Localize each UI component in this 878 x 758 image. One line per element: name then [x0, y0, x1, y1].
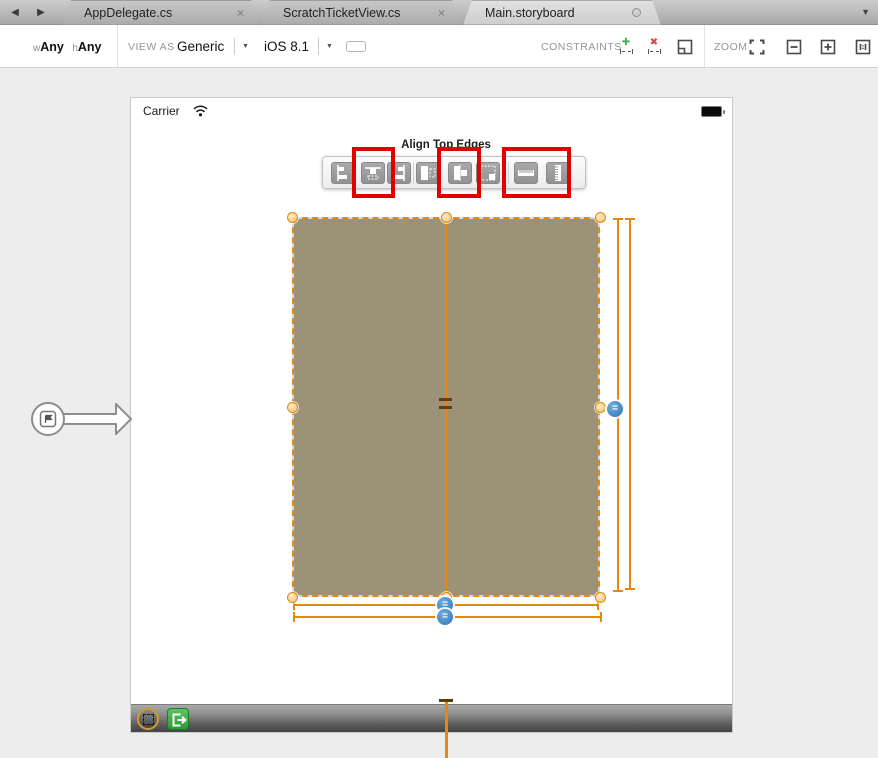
exit-segue-icon[interactable]	[167, 708, 189, 730]
nav-forward-icon[interactable]: ▶	[28, 0, 54, 25]
toolbar-divider	[318, 38, 319, 55]
minus-square-icon	[786, 39, 802, 55]
constraints-label: CONSTRAINTS	[541, 41, 622, 53]
equal-width-badge[interactable]: =	[437, 609, 453, 625]
highlight-box-align-top	[352, 147, 395, 198]
battery-icon	[701, 106, 722, 117]
center-tick	[439, 406, 452, 409]
tab-label: ScratchTicketView.cs	[283, 6, 438, 20]
toolbar-divider	[704, 25, 705, 67]
zoom-fit-button[interactable]	[749, 39, 765, 60]
center-tick	[439, 398, 452, 401]
tab-overflow-menu-icon[interactable]: ▼	[861, 0, 870, 25]
handle-bottom-right[interactable]	[595, 592, 606, 603]
width-class-value: Any	[40, 40, 64, 54]
update-frames-button[interactable]	[677, 39, 693, 60]
handle-top-right[interactable]	[595, 212, 606, 223]
tab-main-storyboard[interactable]: Main.storyboard	[463, 0, 661, 25]
constraint-bracket-icon	[648, 49, 661, 54]
handle-mid-left[interactable]	[287, 402, 298, 413]
close-icon[interactable]: ×	[237, 6, 244, 20]
design-canvas[interactable]: Carrier Align Top Edges	[0, 68, 878, 758]
carrier-label: Carrier	[143, 104, 180, 118]
height-constraint-bar[interactable]	[629, 218, 631, 590]
fullscreen-icon	[749, 39, 765, 55]
height-class-value: Any	[78, 40, 102, 54]
storyboard-designer-window: ◀ ▶ AppDelegate.cs × ScratchTicketView.c…	[0, 0, 878, 758]
designer-toolbar: wAny hAny VIEW AS Generic ▼ iOS 8.1 ▼ CO…	[0, 25, 878, 68]
handle-top-center[interactable]	[441, 212, 452, 223]
size-class-control[interactable]: wAny hAny	[33, 38, 102, 56]
one-to-one-icon	[855, 39, 871, 55]
add-constraint-icon: ✚	[622, 37, 630, 48]
close-icon[interactable]: ×	[438, 6, 445, 20]
device-dropdown-icon[interactable]: ▼	[242, 43, 249, 50]
remove-constraint-icon: ✖	[650, 37, 658, 48]
view-controller-bottom-bar	[131, 704, 732, 732]
wifi-icon	[193, 105, 208, 117]
guide-line-cap	[439, 699, 453, 702]
tab-scratchticketview[interactable]: ScratchTicketView.cs ×	[261, 0, 461, 25]
view-as-label: VIEW AS	[128, 41, 175, 53]
entry-point-arrow[interactable]	[28, 395, 134, 443]
toolbar-divider	[234, 38, 235, 55]
os-version-selector[interactable]: iOS 8.1	[264, 39, 309, 54]
tab-appdelegate[interactable]: AppDelegate.cs ×	[62, 0, 260, 25]
highlight-box-align-center	[437, 147, 481, 198]
view-controller-icon[interactable]	[137, 708, 159, 730]
frame-icon	[677, 39, 693, 55]
plus-square-icon	[820, 39, 836, 55]
constraint-bracket-icon	[620, 49, 633, 54]
tab-label: Main.storyboard	[485, 6, 632, 20]
document-tab-bar: ◀ ▶ AppDelegate.cs × ScratchTicketView.c…	[0, 0, 878, 25]
os-dropdown-icon[interactable]: ▼	[326, 43, 333, 50]
orientation-toggle[interactable]	[346, 41, 366, 52]
vertical-guide-line	[445, 699, 448, 758]
toolbar-divider	[117, 25, 118, 67]
highlight-box-pin-size	[502, 147, 571, 198]
align-leading-icon	[417, 163, 439, 183]
zoom-label: ZOOM	[714, 41, 748, 53]
nav-back-icon[interactable]: ◀	[2, 0, 28, 25]
zoom-actual-size-button[interactable]	[855, 39, 871, 60]
zoom-in-button[interactable]	[820, 39, 836, 60]
handle-bottom-left[interactable]	[287, 592, 298, 603]
zoom-out-button[interactable]	[786, 39, 802, 60]
handle-mid-right[interactable]	[595, 402, 606, 413]
device-selector[interactable]: Generic	[177, 39, 224, 54]
align-left-edges-icon	[332, 163, 354, 183]
handle-top-left[interactable]	[287, 212, 298, 223]
toolbar-divider	[413, 162, 414, 184]
modified-indicator-icon	[632, 8, 641, 17]
equal-height-badge[interactable]: =	[607, 401, 623, 417]
remove-constraint-button[interactable]: ✖	[645, 37, 663, 54]
dashed-square-icon	[143, 714, 154, 725]
exit-arrow-icon	[168, 709, 190, 731]
add-constraint-button[interactable]: ✚	[617, 37, 635, 54]
tab-label: AppDelegate.cs	[84, 6, 237, 20]
